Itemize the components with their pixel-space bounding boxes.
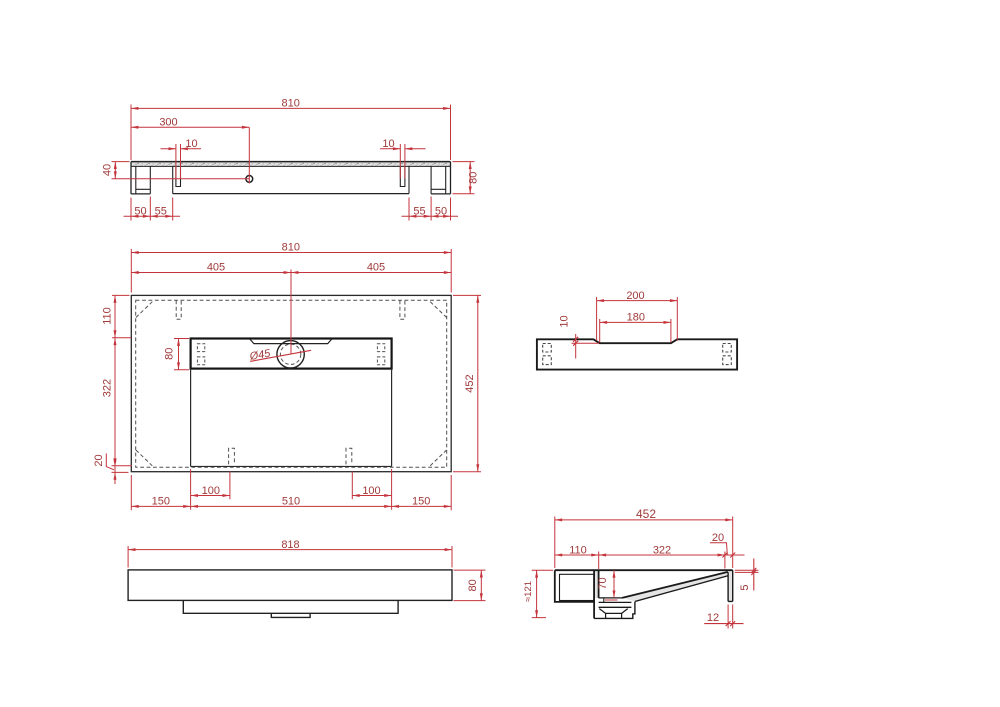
- svg-text:100: 100: [362, 485, 380, 497]
- svg-text:70: 70: [597, 577, 609, 589]
- svg-text:322: 322: [102, 379, 114, 397]
- svg-text:510: 510: [282, 496, 300, 508]
- svg-text:322: 322: [653, 544, 671, 556]
- svg-text:80: 80: [164, 348, 176, 360]
- svg-text:100: 100: [202, 485, 220, 497]
- svg-text:150: 150: [412, 496, 430, 508]
- svg-text:10: 10: [382, 138, 394, 150]
- svg-text:55: 55: [413, 206, 425, 218]
- svg-text:5: 5: [739, 584, 751, 590]
- svg-text:55: 55: [155, 206, 167, 218]
- svg-text:12: 12: [707, 612, 719, 624]
- svg-text:150: 150: [152, 496, 170, 508]
- svg-text:40: 40: [102, 164, 114, 176]
- svg-text:10: 10: [559, 315, 571, 327]
- svg-text:405: 405: [207, 262, 225, 274]
- svg-text:405: 405: [367, 262, 385, 274]
- svg-text:810: 810: [282, 242, 300, 254]
- svg-text:452: 452: [636, 507, 656, 521]
- svg-text:110: 110: [102, 307, 114, 325]
- svg-text:50: 50: [435, 206, 447, 218]
- svg-text:20: 20: [93, 454, 105, 466]
- svg-text:80: 80: [467, 579, 479, 591]
- svg-text:180: 180: [627, 312, 645, 324]
- svg-text:20: 20: [712, 532, 724, 544]
- svg-text:818: 818: [281, 539, 299, 551]
- svg-text:810: 810: [282, 98, 300, 110]
- svg-text:452: 452: [464, 374, 476, 392]
- svg-text:200: 200: [626, 290, 644, 302]
- svg-text:≈121: ≈121: [523, 581, 534, 602]
- svg-text:50: 50: [134, 206, 146, 218]
- svg-text:10: 10: [185, 138, 197, 150]
- svg-text:110: 110: [569, 544, 587, 556]
- svg-text:300: 300: [159, 117, 177, 129]
- svg-text:80: 80: [468, 172, 480, 184]
